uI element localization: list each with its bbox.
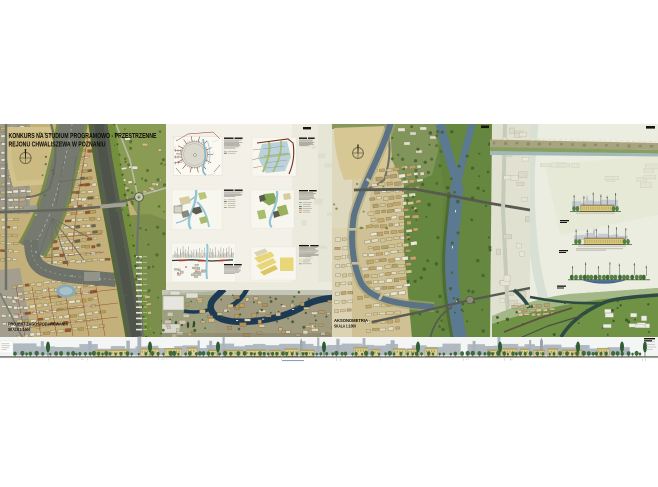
svg-text:AKSONOMETRIA: AKSONOMETRIA [334, 318, 369, 323]
svg-text:REJONU CHWALISZEWA W POZNANIU: REJONU CHWALISZEWA W POZNANIU [9, 140, 106, 149]
svg-text:SKALA 1:1000: SKALA 1:1000 [334, 324, 356, 329]
svg-text:SKALA 1:1000: SKALA 1:1000 [8, 327, 30, 332]
svg-text:PROJEKT ZAGOSPODAROWANIA: PROJEKT ZAGOSPODAROWANIA [8, 322, 69, 327]
